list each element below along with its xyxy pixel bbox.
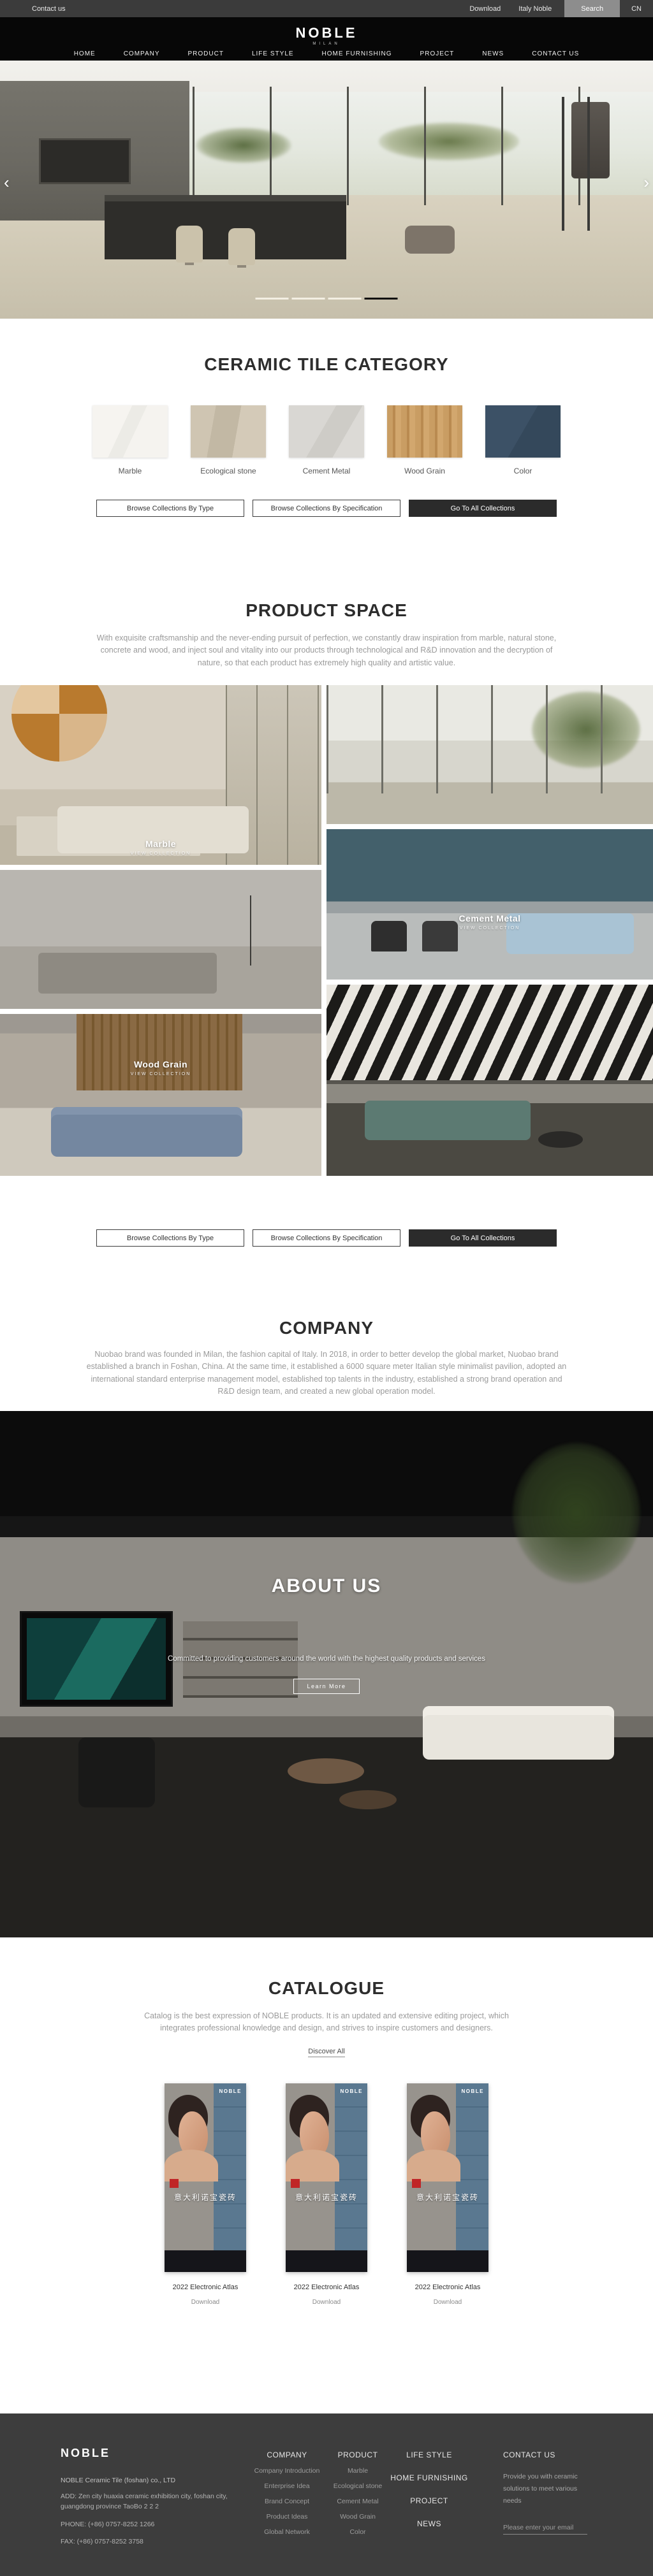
hero-fireplace [39,138,130,185]
site-footer: NOBLE NOBLE Ceramic Tile (foshan) co., L… [0,2413,653,2576]
cover-model-shoulder-decor [165,2150,218,2182]
collection-name: Wood Grain [0,1059,321,1069]
company-description: Nuobao brand was founded in Milan, the f… [84,1349,569,1398]
about-learn-more-button[interactable]: Learn More [293,1679,360,1694]
catalogue-description: Catalog is the best expression of NOBLE … [129,2010,524,2035]
catalogue-card-title: 2022 Electronic Atlas [286,2283,367,2291]
tile-swatch-wood-grain [387,405,462,458]
browse-by-type-button[interactable]: Browse Collections By Type [96,1229,244,1247]
footer-col-contact-header[interactable]: CONTACT US [503,2450,592,2459]
spacer [381,2459,477,2473]
tile-label: Wood Grain [387,467,462,475]
tile-swatch-color [485,405,561,458]
tile-label: Marble [92,467,168,475]
tile-label: Ecological stone [191,467,266,475]
catalogue-download-link[interactable]: Download [407,2299,488,2306]
tile-swatch-marble [92,405,168,458]
tile-card-ecological-stone[interactable]: Ecological stone [191,405,266,475]
tile-label: Cement Metal [289,467,364,475]
cover-chinese-title: 意大利诺宝瓷砖 [286,2192,367,2203]
view-collection-link[interactable]: VIEW COLLECTION [0,1072,321,1076]
footer-link-global-network[interactable]: Global Network [246,2528,328,2536]
cover-bottom-strip [165,2250,246,2272]
sofa-decor [38,953,217,994]
product-space-section: PRODUCT SPACE With exquisite craftsmansh… [0,554,653,685]
nav-item-product[interactable]: PRODUCT [188,50,224,57]
nav-item-company[interactable]: COMPANY [124,50,160,57]
footer-link-home-furnishing[interactable]: HOME FURNISHING [381,2473,477,2482]
carousel-next-icon[interactable]: › [643,174,649,191]
striped-ceiling-decor [326,985,653,1080]
catalogue-card-1: NOBLE 意大利诺宝瓷砖 2022 Electronic Atlas Down… [165,2083,246,2306]
carousel-bar-3[interactable] [328,298,362,300]
nav-item-home[interactable]: HOME [74,50,96,57]
tile-card-cement-metal[interactable]: Cement Metal [289,405,364,475]
footer-link-project[interactable]: PROJECT [381,2496,477,2505]
nav-item-lifestyle[interactable]: LIFE STYLE [252,50,294,57]
spacer [381,2482,477,2496]
catalogue-cover-1[interactable]: NOBLE 意大利诺宝瓷砖 [165,2083,246,2272]
glass-wall-decor [326,685,653,793]
product-space-title: PRODUCT SPACE [0,554,653,621]
view-collection-link[interactable]: VIEW COLLECTION [0,851,321,856]
tile-swatch-ecological-stone [191,405,266,458]
catalogue-section: CATALOGUE Catalog is the best expression… [0,1937,653,2413]
footer-info-block: NOBLE NOBLE Ceramic Tile (foshan) co., L… [61,2447,233,2547]
catalogue-covers-row: NOBLE 意大利诺宝瓷砖 2022 Electronic Atlas Down… [0,2083,653,2306]
cover-model-shoulder-decor [286,2150,339,2182]
nav-item-project[interactable]: PROJECT [420,50,455,57]
collection-caption-marble[interactable]: Marble VIEW COLLECTION [0,839,321,856]
footer-link-life-style[interactable]: LIFE STYLE [381,2450,477,2459]
teal-sofa-decor [365,1101,531,1140]
search-button[interactable]: Search [564,0,620,17]
collection-name: Marble [0,839,321,849]
cover-brand-text: NOBLE [341,2088,363,2094]
site-header: NOBLE MILAN HOME COMPANY PRODUCT LIFE ST… [0,17,653,61]
footer-logo: NOBLE [61,2447,233,2460]
hero-bar-stool [176,226,203,263]
discover-all-wrap: Discover All [0,2045,653,2057]
hero-rack-frame [562,97,619,231]
catalogue-download-link[interactable]: Download [286,2299,367,2306]
view-collection-link[interactable]: VIEW COLLECTION [326,926,653,930]
hero-pouf [405,226,455,254]
collection-caption-cement-metal[interactable]: Cement Metal VIEW COLLECTION [326,913,653,930]
wood-medallion-decor [11,685,107,762]
collection-buttons-section: Browse Collections By Type Browse Collec… [0,1176,653,1300]
blue-sofa-decor [51,1107,242,1157]
footer-address: ADD: Zen city huaxia ceramic exhibition … [61,2492,233,2512]
discover-all-link[interactable]: Discover All [308,2048,344,2057]
browse-by-type-button[interactable]: Browse Collections By Type [96,500,244,517]
space-image-courtyard[interactable] [326,685,653,824]
collection-buttons-row: Browse Collections By Type Browse Collec… [96,1229,557,1247]
cover-tile-decor [335,2083,367,2272]
wood-slat-wall-decor [77,1014,242,1090]
nav-item-news[interactable]: NEWS [482,50,504,57]
italy-noble-link[interactable]: Italy Noble [510,5,561,13]
top-utility-bar: Contact us Download Italy Noble Search C… [0,0,653,17]
cover-bottom-strip [286,2250,367,2272]
catalogue-cover-3[interactable]: NOBLE 意大利诺宝瓷砖 [407,2083,488,2272]
space-image-cement-metal[interactable]: Cement Metal VIEW COLLECTION [326,829,653,980]
catalogue-title: CATALOGUE [0,1937,653,1999]
collection-name: Cement Metal [326,913,653,923]
collection-buttons-row: Browse Collections By Type Browse Collec… [0,500,653,517]
download-link[interactable]: Download [460,5,510,13]
cover-model-shoulder-decor [407,2150,460,2182]
space-image-striped-lounge[interactable] [326,985,653,1176]
cover-chinese-title: 意大利诺宝瓷砖 [407,2192,488,2203]
footer-col-company: COMPANY Company Introduction Enterprise … [246,2450,328,2536]
cover-red-accent [170,2179,179,2188]
catalogue-card-title: 2022 Electronic Atlas [407,2283,488,2291]
hero-bar-stool [228,228,255,265]
footer-link-color[interactable]: Color [324,2528,392,2536]
cover-tile-decor [456,2083,488,2272]
nav-item-home-furnishing[interactable]: HOME FURNISHING [322,50,392,57]
about-description: Committed to providing customers around … [148,1653,505,1665]
language-toggle[interactable]: CN [620,5,653,13]
round-table-decor [288,1758,364,1784]
tile-card-color[interactable]: Color [485,405,561,475]
carousel-prev-icon[interactable]: ‹ [4,174,10,191]
footer-phone: PHONE: (+86) 0757-8252 1266 [61,2520,233,2530]
carousel-bar-2[interactable] [292,298,325,300]
black-armchair-decor [78,1737,155,1807]
space-image-grey-lounge[interactable] [0,870,321,1009]
collection-caption-wood-grain[interactable]: Wood Grain VIEW COLLECTION [0,1059,321,1076]
footer-contact-text: Provide you with ceramic solutions to me… [503,2471,592,2507]
footer-link-company-introduction[interactable]: Company Introduction [246,2467,328,2475]
cover-brand-text: NOBLE [462,2088,485,2094]
logo-wrap: NOBLE MILAN [0,17,653,46]
catalogue-card-2: NOBLE 意大利诺宝瓷砖 2022 Electronic Atlas Down… [286,2083,367,2306]
product-space-description: With exquisite craftsmanship and the nev… [91,632,562,669]
category-title: CERAMIC TILE CATEGORY [0,319,653,375]
carousel-bar-1[interactable] [256,298,289,300]
tile-card-wood-grain[interactable]: Wood Grain [387,405,462,475]
company-section: COMPANY Nuobao brand was founded in Mila… [0,1300,653,1411]
hero-kitchen-island [105,195,346,259]
footer-col-company-header[interactable]: COMPANY [246,2450,328,2459]
product-space-grid: Marble VIEW COLLECTION Wood Grain VIEW C… [0,685,653,1176]
catalogue-card-3: NOBLE 意大利诺宝瓷砖 2022 Electronic Atlas Down… [407,2083,488,2306]
cover-tile-decor [214,2083,246,2272]
brand-logo[interactable]: NOBLE [0,25,653,41]
space-image-wood-grain[interactable]: Wood Grain VIEW COLLECTION [0,1014,321,1176]
go-to-all-collections-button[interactable]: Go To All Collections [409,500,557,517]
cover-chinese-title: 意大利诺宝瓷砖 [165,2192,246,2203]
cover-bottom-strip [407,2250,488,2272]
carousel-bar-4-active[interactable] [365,298,398,300]
footer-link-product-ideas[interactable]: Product Ideas [246,2513,328,2521]
round-table-decor [339,1790,397,1809]
brand-logo-subtitle: MILAN [0,42,653,46]
hero-carousel: ‹ › [0,61,653,319]
carousel-pagination [256,298,398,300]
footer-fax: FAX: (+86) 0757-8252 3758 [61,2537,233,2547]
about-us-section: ABOUT US Committed to providing customer… [0,1411,653,1937]
browse-by-specification-button[interactable]: Browse Collections By Specification [253,500,400,517]
browse-by-specification-button[interactable]: Browse Collections By Specification [253,1229,400,1247]
footer-link-enterprise-idea[interactable]: Enterprise Idea [246,2482,328,2490]
go-to-all-collections-button[interactable]: Go To All Collections [409,1229,557,1247]
contact-us-link[interactable]: Contact us [23,5,75,13]
tile-swatch-cement-metal [289,405,364,458]
white-sofa-decor [423,1706,614,1760]
cover-brand-text: NOBLE [219,2088,242,2094]
footer-col-links: LIFE STYLE HOME FURNISHING PROJECT NEWS [381,2450,477,2528]
footer-link-brand-concept[interactable]: Brand Concept [246,2498,328,2505]
topbar-right-group: Download Italy Noble Search CN [460,0,653,17]
catalogue-download-link[interactable]: Download [165,2299,246,2306]
footer-link-news[interactable]: NEWS [381,2519,477,2528]
spacer [381,2505,477,2519]
tile-swatch-row: Marble Ecological stone Cement Metal Woo… [0,405,653,475]
company-title: COMPANY [0,1300,653,1338]
tile-label: Color [485,467,561,475]
nav-item-contact[interactable]: CONTACT US [532,50,579,57]
ceramic-tile-category-section: CERAMIC TILE CATEGORY Marble Ecological … [0,319,653,554]
tile-card-marble[interactable]: Marble [92,405,168,475]
footer-email-input[interactable] [503,2521,587,2535]
catalogue-cover-2[interactable]: NOBLE 意大利诺宝瓷砖 [286,2083,367,2272]
footer-company-name: NOBLE Ceramic Tile (foshan) co., LTD [61,2477,233,2484]
catalogue-card-title: 2022 Electronic Atlas [165,2283,246,2291]
space-image-marble[interactable]: Marble VIEW COLLECTION [0,685,321,865]
cover-red-accent [291,2179,300,2188]
coffee-table-decor [538,1131,583,1148]
footer-col-contact: CONTACT US Provide you with ceramic solu… [503,2450,592,2535]
main-nav: HOME COMPANY PRODUCT LIFE STYLE HOME FUR… [0,50,653,57]
about-title: ABOUT US [0,1575,653,1597]
about-overlay: ABOUT US Committed to providing customer… [0,1411,653,1694]
floor-lamp-decor [250,895,251,966]
cover-red-accent [412,2179,421,2188]
